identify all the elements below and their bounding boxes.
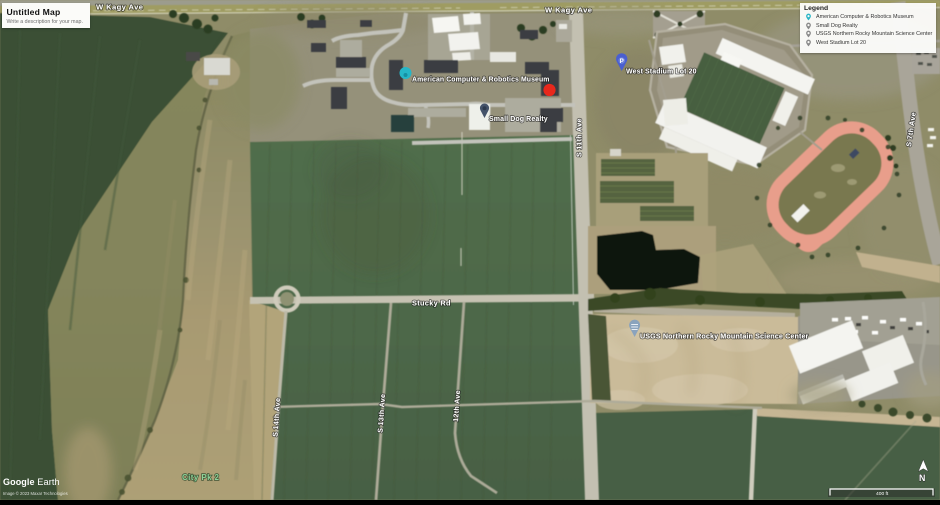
svg-text:W Kagy Ave: W Kagy Ave: [545, 6, 592, 15]
svg-text:West Stadium Lot 20: West Stadium Lot 20: [626, 69, 697, 76]
svg-text:P: P: [620, 58, 624, 65]
svg-text:Image © 2023 Maxar Technologie: Image © 2023 Maxar Technologies: [3, 491, 68, 496]
svg-text:S 11th Ave: S 11th Ave: [575, 118, 584, 157]
svg-text:American Computer & Robotics M: American Computer & Robotics Museum: [412, 77, 550, 84]
svg-text:W Kagy Ave: W Kagy Ave: [96, 3, 143, 12]
svg-text:400 ft: 400 ft: [876, 491, 889, 497]
svg-text:Stucky Rd: Stucky Rd: [412, 299, 451, 308]
svg-text:Small Dog Realty: Small Dog Realty: [489, 116, 548, 123]
svg-text:City Pk 2: City Pk 2: [182, 473, 220, 482]
svg-text:USGS Northern Rocky Mountain S: USGS Northern Rocky Mountain Science Cen…: [640, 332, 809, 341]
svg-text:N: N: [919, 473, 925, 483]
svg-text:Google Earth: Google Earth: [3, 477, 60, 487]
